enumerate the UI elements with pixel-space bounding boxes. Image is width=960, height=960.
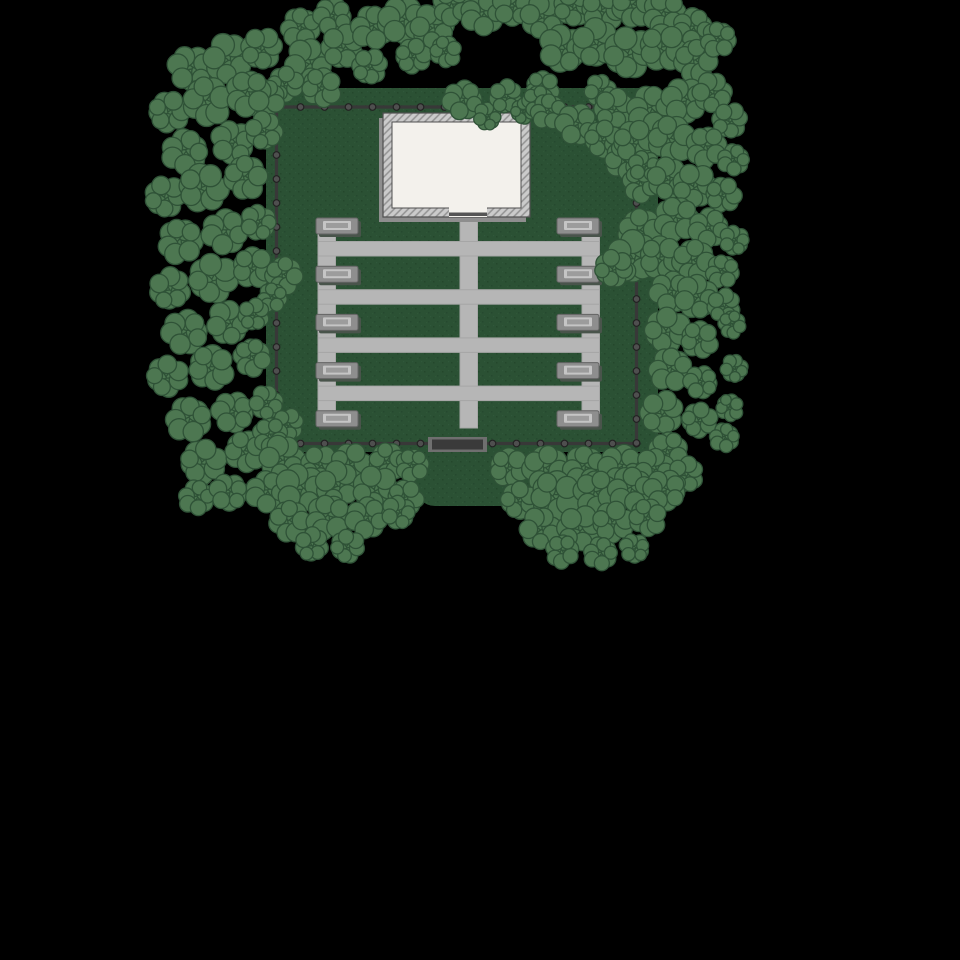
tree-blob <box>396 46 410 60</box>
tree-blob <box>278 257 292 271</box>
game-viewport <box>0 0 960 960</box>
tree-blob <box>490 84 505 99</box>
garden-bench[interactable] <box>316 363 361 382</box>
fence-post <box>273 152 280 159</box>
tree-blob <box>733 243 744 254</box>
garden-bench[interactable] <box>557 363 602 382</box>
tree-blob <box>585 130 599 144</box>
tree-blob <box>593 511 609 527</box>
tree-clump <box>629 499 666 537</box>
tree-blob <box>324 29 343 48</box>
tree-clump <box>238 298 269 330</box>
tree-blob <box>647 167 665 185</box>
garden-bench[interactable] <box>557 411 602 430</box>
tree-blob <box>248 339 262 353</box>
tree-blob <box>666 433 681 448</box>
gate-door[interactable] <box>432 440 483 450</box>
tree-blob <box>179 241 199 261</box>
tree-blob <box>182 223 199 240</box>
tree-blob <box>189 271 208 290</box>
tree-blob <box>212 350 232 370</box>
fence-post <box>273 320 280 327</box>
tree-blob <box>181 450 198 467</box>
tree-blob <box>243 47 259 63</box>
tree-blob <box>725 260 738 273</box>
tree-blob <box>495 5 513 23</box>
tree-blob <box>331 500 348 517</box>
tree-blob <box>629 120 648 139</box>
tree-blob <box>493 99 506 112</box>
tree-blob <box>688 383 703 398</box>
tree-clump <box>396 449 429 483</box>
tree-blob <box>248 73 265 90</box>
tree-blob <box>631 209 648 226</box>
tree-blob <box>146 368 162 384</box>
tree-blob <box>256 226 270 240</box>
door-threshold <box>449 213 487 217</box>
tree-blob <box>636 499 650 513</box>
tree-blob <box>720 178 736 194</box>
tree-blob <box>643 394 662 413</box>
garden-bench[interactable] <box>557 218 602 237</box>
tree-blob <box>275 287 286 298</box>
tree-blob <box>692 301 709 318</box>
bench-seat <box>567 271 589 276</box>
tree-blob <box>666 0 683 12</box>
tree-blob <box>361 466 381 486</box>
tree-blob <box>325 48 342 65</box>
tree-blob <box>230 493 244 507</box>
fence-post <box>273 176 280 183</box>
tree-blob <box>721 27 735 41</box>
tree-blob <box>236 251 252 267</box>
fence-post <box>609 440 616 447</box>
bench-seat <box>567 319 589 324</box>
tree-blob <box>592 471 609 488</box>
tree-blob <box>382 509 397 524</box>
tree-blob <box>485 119 496 130</box>
tree-blob <box>296 533 311 548</box>
tree-blob <box>195 347 212 364</box>
fence-post <box>297 104 304 111</box>
fence-post <box>489 440 496 447</box>
tree-blob <box>223 327 240 344</box>
tree-blob <box>246 29 264 47</box>
tree-blob <box>563 549 578 564</box>
tree-blob <box>583 0 600 12</box>
fence-post <box>273 368 280 375</box>
tree-clump <box>352 49 388 84</box>
fence-post <box>633 320 640 327</box>
bench-seat <box>567 416 589 421</box>
tree-blob <box>595 263 609 277</box>
tree-clump <box>241 204 276 240</box>
tree-blob <box>540 45 561 66</box>
gate[interactable] <box>428 437 487 452</box>
tree-blob <box>635 549 646 560</box>
tree-blob <box>730 372 741 383</box>
tree-blob <box>213 140 232 159</box>
tree-blob <box>436 36 448 48</box>
tree-blob <box>152 176 170 194</box>
tree-blob <box>728 430 739 441</box>
tree-clump <box>701 22 737 57</box>
tree-blob <box>493 451 508 466</box>
tree-blob <box>721 395 732 406</box>
tree-blob <box>675 291 694 310</box>
tree-blob <box>315 471 335 491</box>
tree-blob <box>183 422 203 442</box>
tree-blob <box>356 50 372 66</box>
bench-seat <box>326 368 348 373</box>
tree-blob <box>308 69 323 84</box>
tree-blob <box>412 464 427 479</box>
tree-clump <box>189 345 234 390</box>
fence-post <box>561 440 568 447</box>
garden-bench[interactable] <box>557 314 602 333</box>
tree-blob <box>396 516 409 529</box>
tree-blob <box>253 135 267 149</box>
fence-post <box>273 344 280 351</box>
tree-blob <box>716 104 732 120</box>
tree-blob <box>716 40 732 56</box>
tree-blob <box>685 323 699 337</box>
tree-blob <box>687 240 704 257</box>
fence-post <box>633 368 640 375</box>
tree-blob <box>511 106 521 116</box>
garden-bench[interactable] <box>316 218 361 237</box>
tree-blob <box>614 129 631 146</box>
tree-clump <box>681 321 718 358</box>
bench-seat <box>326 416 348 421</box>
tree-blob <box>501 492 515 506</box>
tree-blob <box>196 439 216 459</box>
tree-blob <box>199 165 221 187</box>
walkway <box>318 242 600 257</box>
tree-clump <box>382 495 415 529</box>
tree-blob <box>555 4 570 19</box>
tree-blob <box>729 311 740 322</box>
tree-blob <box>730 398 742 410</box>
site-plan <box>0 0 960 960</box>
tree-blob <box>170 334 190 354</box>
tree-blob <box>561 509 581 529</box>
fence-post <box>369 104 376 111</box>
tree-blob <box>331 541 344 554</box>
fence-post <box>633 440 640 447</box>
tree-blob <box>190 143 207 160</box>
tree-blob <box>720 238 733 251</box>
fence-post <box>345 104 352 111</box>
tree-blob <box>561 536 574 549</box>
tree-blob <box>235 411 251 427</box>
tree-blob <box>630 165 644 179</box>
tree-blob <box>156 292 172 308</box>
tree-blob <box>538 473 557 492</box>
tree-blob <box>150 274 168 292</box>
tree-blob <box>281 501 297 517</box>
tree-clump <box>716 394 743 422</box>
tree-blob <box>643 29 661 47</box>
tree-blob <box>213 492 230 509</box>
tree-blob <box>661 26 682 47</box>
tree-blob <box>643 413 660 430</box>
tree-blob <box>181 170 200 189</box>
tree-blob <box>597 92 615 110</box>
bench-seat <box>567 223 589 228</box>
fence-post <box>417 440 424 447</box>
tree-blob <box>682 411 696 425</box>
tree-blob <box>720 272 735 287</box>
fence-post <box>393 104 400 111</box>
tree-blob <box>378 443 392 457</box>
tree-blob <box>193 406 210 423</box>
fence-post <box>369 440 376 447</box>
fence-post <box>273 200 280 207</box>
tree-blob <box>384 21 405 42</box>
tree-blob <box>542 74 557 89</box>
tree-blob <box>194 77 213 96</box>
tree-blob <box>164 92 182 110</box>
bench-seat <box>326 223 348 228</box>
tree-clump <box>158 219 203 264</box>
walkway <box>318 338 600 353</box>
tree-blob <box>622 548 635 561</box>
tree-blob <box>408 38 424 54</box>
tree-blob <box>300 547 313 560</box>
fence-post <box>633 392 640 399</box>
tree-blob <box>680 164 699 183</box>
tree-blob <box>254 352 271 369</box>
building-floor <box>392 122 521 208</box>
tree-blob <box>242 316 254 328</box>
walkway <box>318 386 600 401</box>
tree-blob <box>649 505 666 522</box>
tree-blob <box>347 444 365 462</box>
walkway <box>318 290 600 305</box>
fence-post <box>321 440 328 447</box>
fence-post <box>273 248 280 255</box>
bench-seat <box>326 271 348 276</box>
garden-bench[interactable] <box>316 411 361 430</box>
tree-blob <box>145 193 161 209</box>
fence-post <box>417 104 424 111</box>
tree-blob <box>644 321 661 338</box>
tree-blob <box>674 182 691 199</box>
tree-blob <box>530 73 543 86</box>
fence-post <box>633 296 640 303</box>
garden-bench[interactable] <box>316 266 361 285</box>
tree-blob <box>658 116 676 134</box>
fence-post <box>633 416 640 423</box>
fence-post <box>513 440 520 447</box>
tree-blob <box>240 302 254 316</box>
tree-blob <box>657 183 673 199</box>
tree-blob <box>604 546 617 559</box>
tree-blob <box>643 240 660 257</box>
tree-blob <box>306 447 323 464</box>
tree-blob <box>236 156 253 173</box>
tree-blob <box>581 47 599 65</box>
tree-blob <box>539 446 557 464</box>
tree-blob <box>604 46 624 66</box>
tree-blob <box>667 490 683 506</box>
tree-blob <box>269 419 283 433</box>
tree-blob <box>737 154 749 166</box>
tree-blob <box>322 73 340 91</box>
tree-blob <box>189 329 206 346</box>
tree-clump <box>640 390 683 433</box>
tree-blob <box>562 125 580 143</box>
tree-blob <box>354 66 368 80</box>
bench-seat <box>567 368 589 373</box>
tree-blob <box>217 413 235 431</box>
tree-blob <box>149 99 165 115</box>
tree-blob <box>451 102 469 120</box>
tree-blob <box>707 182 721 196</box>
tree-blob <box>708 293 723 308</box>
garden-building[interactable] <box>379 113 530 222</box>
tree-clump <box>619 534 648 563</box>
tree-clump <box>302 68 341 108</box>
tree-blob <box>403 481 419 497</box>
garden-bench[interactable] <box>316 314 361 333</box>
tree-clump <box>241 28 283 69</box>
tree-blob <box>607 501 625 519</box>
tree-blob <box>520 5 539 24</box>
bench-seat <box>326 319 348 324</box>
fence-post <box>633 344 640 351</box>
tree-blob <box>703 381 716 394</box>
tree-clump <box>720 225 749 255</box>
tree-blob <box>412 451 425 464</box>
tree-blob <box>706 129 722 145</box>
tree-blob <box>249 91 269 111</box>
tree-blob <box>245 119 262 136</box>
tree-blob <box>447 41 461 55</box>
tree-blob <box>270 298 283 311</box>
tree-blob <box>573 27 594 48</box>
tree-blob <box>241 219 257 235</box>
tree-clump <box>430 36 461 67</box>
tree-blob <box>699 325 716 342</box>
tree-blob <box>232 432 248 448</box>
